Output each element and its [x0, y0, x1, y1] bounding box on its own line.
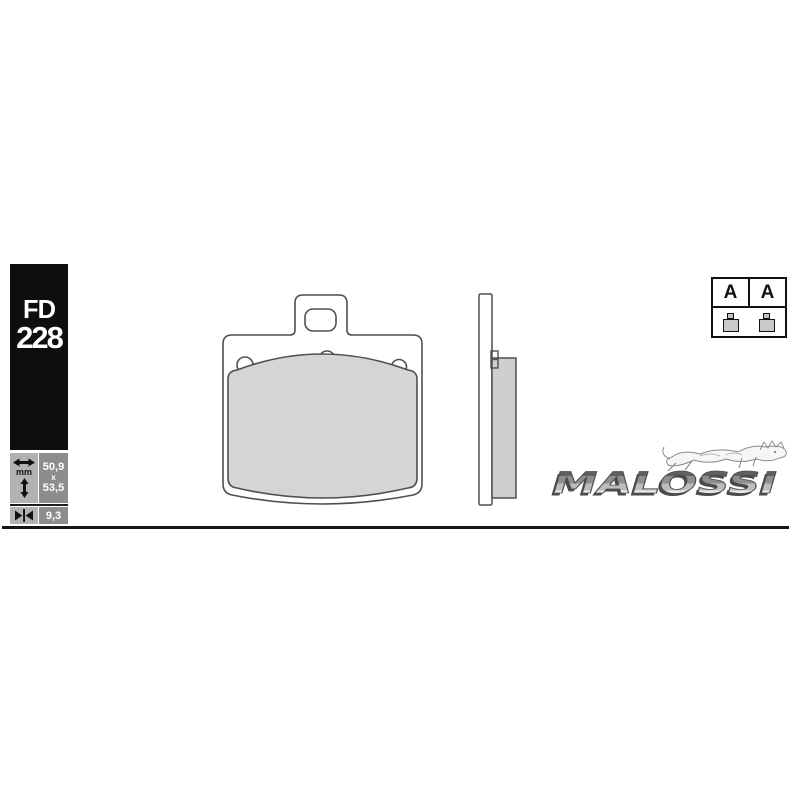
mini-brake-pad-icon [723, 319, 739, 332]
height-value: 53,5 [43, 482, 64, 495]
dimension-values-cell: 50,9 x 53,5 [39, 453, 68, 503]
brake-pad-side-view [465, 285, 530, 510]
brake-pad-front-view [190, 280, 450, 525]
product-code-line2: 228 [10, 322, 68, 353]
grade-box: A A [711, 277, 787, 338]
thickness-value-cell: 9,3 [39, 507, 68, 524]
mini-brake-pad-icon [759, 319, 775, 332]
height-arrow-icon [20, 478, 29, 498]
thickness-arrows-icon [13, 509, 35, 522]
product-code-box: FD 228 [10, 264, 68, 450]
width-arrow-icon [13, 458, 35, 467]
grade-letters-row: A A [713, 279, 785, 308]
brand-logo: MALOSSI MALOSSI [540, 440, 795, 528]
thickness-value: 9,3 [46, 510, 61, 522]
mounting-hole [305, 309, 336, 331]
grade-cell-right: A [750, 279, 785, 306]
mini-pad-nub [727, 313, 734, 319]
grade-letter-left: A [724, 282, 738, 304]
side-friction-pad [492, 358, 516, 498]
spec-row-divider [10, 504, 68, 506]
unit-label: mm [16, 468, 32, 477]
multiply-label: x [51, 474, 55, 482]
side-backing-plate [479, 294, 492, 505]
grade-icons-row [713, 308, 785, 337]
grade-cell-left: A [713, 279, 750, 306]
grade-letter-right: A [761, 282, 775, 304]
mini-pad-nub [763, 313, 770, 319]
brand-name-text: MALOSSI [553, 466, 777, 500]
dimension-icons-cell: mm [10, 453, 38, 503]
thickness-icon-cell [10, 507, 38, 524]
product-code-line1: FD [11, 298, 68, 322]
friction-pad [228, 354, 417, 498]
